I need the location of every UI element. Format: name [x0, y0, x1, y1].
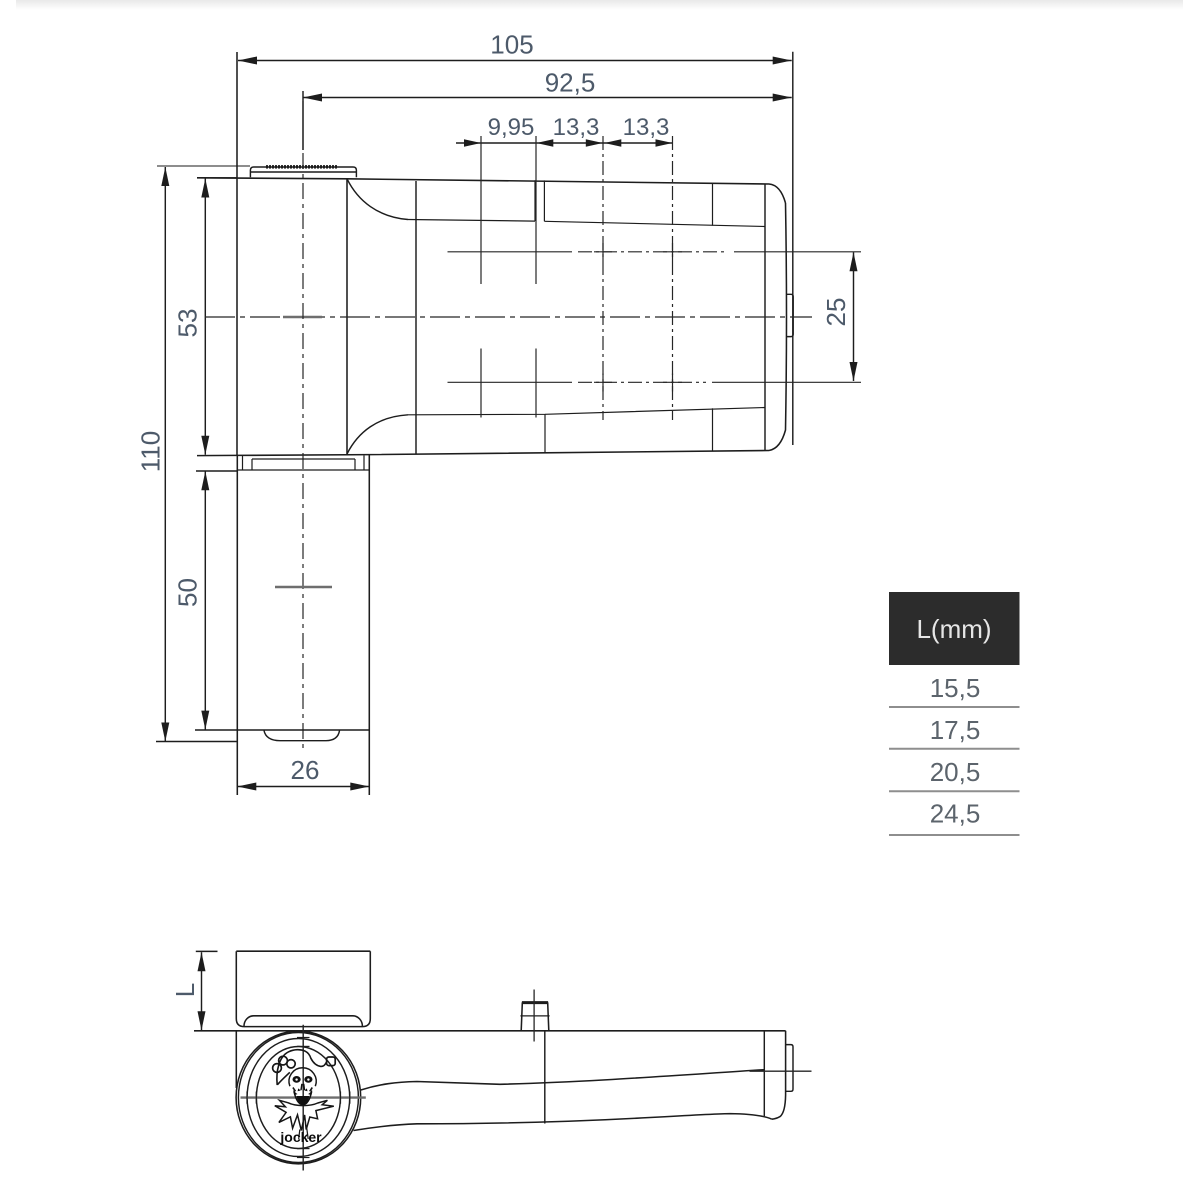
svg-text:53: 53 — [173, 309, 203, 338]
svg-text:26: 26 — [291, 755, 320, 785]
svg-text:50: 50 — [173, 578, 203, 607]
svg-text:9,95: 9,95 — [488, 114, 535, 141]
svg-text:105: 105 — [490, 30, 533, 60]
svg-text:25: 25 — [821, 298, 851, 327]
svg-text:13,3: 13,3 — [553, 114, 600, 141]
svg-text:jocker: jocker — [279, 1129, 322, 1145]
svg-text:20,5: 20,5 — [930, 757, 981, 787]
svg-text:13,3: 13,3 — [623, 114, 670, 141]
svg-text:17,5: 17,5 — [930, 715, 981, 745]
svg-text:15,5: 15,5 — [930, 673, 981, 703]
svg-text:24,5: 24,5 — [930, 799, 981, 829]
svg-text:92,5: 92,5 — [545, 68, 596, 98]
svg-text:L: L — [170, 983, 200, 997]
svg-text:110: 110 — [136, 431, 166, 472]
svg-text:L(mm): L(mm) — [916, 614, 991, 644]
